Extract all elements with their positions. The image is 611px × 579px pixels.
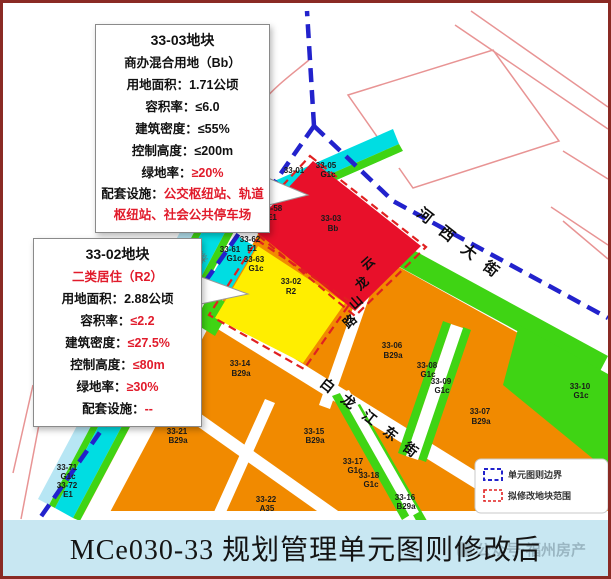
svg-text:B29a: B29a	[305, 436, 325, 445]
svg-text:Bb: Bb	[328, 224, 339, 233]
svg-text:33-09: 33-09	[431, 377, 452, 386]
svg-text:E1: E1	[247, 244, 257, 253]
svg-text:B29a: B29a	[396, 502, 416, 511]
svg-text:G1c: G1c	[226, 254, 242, 263]
svg-text:33-02: 33-02	[281, 277, 302, 286]
svg-text:33-07: 33-07	[470, 407, 491, 416]
svg-text:B29a: B29a	[168, 436, 188, 445]
svg-text:G1c: G1c	[320, 170, 336, 179]
callout-33-02-height: 控制高度：≤80m	[36, 354, 199, 376]
svg-text:33-14: 33-14	[230, 359, 251, 368]
svg-text:33-18: 33-18	[359, 471, 380, 480]
callout-33-03-height: 控制高度：≤200m	[99, 140, 266, 162]
callout-33-03-density: 建筑密度：≤55%	[99, 118, 266, 140]
svg-text:33-63: 33-63	[244, 255, 265, 264]
svg-text:33-71: 33-71	[57, 463, 78, 472]
legend: 单元图则边界 拟修改地块范围	[475, 459, 608, 513]
svg-text:A35: A35	[260, 504, 275, 513]
svg-text:G1c: G1c	[573, 391, 589, 400]
svg-text:B29a: B29a	[231, 369, 251, 378]
callout-33-02-area: 用地面积：2.88公顷	[36, 288, 199, 310]
svg-text:33-15: 33-15	[304, 427, 325, 436]
callout-33-03-far: 容积率：≤6.0	[99, 96, 266, 118]
svg-text:33-62: 33-62	[240, 235, 261, 244]
callout-33-02-landuse: 二类居住（R2）	[36, 266, 199, 288]
callout-33-02-title: 33-02地块	[36, 243, 199, 266]
callout-33-02: 33-02地块 二类居住（R2） 用地面积：2.88公顷 容积率：≤2.2 建筑…	[33, 238, 202, 427]
svg-text:G1c: G1c	[363, 480, 379, 489]
callout-33-02-far: 容积率：≤2.2	[36, 310, 199, 332]
svg-text:33-22: 33-22	[256, 495, 277, 504]
callout-33-03-green: 绿地率：≥20%	[99, 162, 266, 184]
svg-text:33-08: 33-08	[417, 361, 438, 370]
svg-text:B29a: B29a	[383, 351, 403, 360]
caption-bar: 公众号·福州房产 MCe030-33 规划管理单元图则修改后	[3, 520, 608, 576]
svg-text:33-03: 33-03	[321, 214, 342, 223]
callout-33-03-facilities: 配套设施：公交枢纽站、轨道枢纽站、社会公共停车场	[99, 184, 266, 226]
callout-33-03-title: 33-03地块	[99, 29, 266, 52]
callout-33-03-landuse: 商办混合用地（Bb）	[99, 52, 266, 74]
svg-text:33-61: 33-61	[220, 245, 241, 254]
svg-text:33-72: 33-72	[57, 481, 78, 490]
svg-text:33-17: 33-17	[343, 457, 364, 466]
legend-label-modify-range: 拟修改地块范围	[508, 490, 571, 501]
svg-text:33-16: 33-16	[395, 493, 416, 502]
callout-33-03-area: 用地面积：1.71公顷	[99, 74, 266, 96]
caption-title: MCe030-33 规划管理单元图则修改后	[70, 528, 541, 568]
svg-text:33-06: 33-06	[382, 341, 403, 350]
callout-33-02-facilities: 配套设施：--	[36, 398, 199, 420]
svg-text:E1: E1	[63, 490, 73, 499]
callout-33-02-green: 绿地率：≥30%	[36, 376, 199, 398]
svg-text:33-05: 33-05	[316, 161, 337, 170]
svg-text:33-01: 33-01	[284, 166, 305, 175]
legend-label-unit-boundary: 单元图则边界	[508, 469, 562, 480]
callout-33-03: 33-03地块 商办混合用地（Bb） 用地面积：1.71公顷 容积率：≤6.0 …	[95, 24, 270, 233]
planning-map-figure: 河 西 大 街 云 龙 山 路 白 龙 江 东 街 秦 33-01 33-05 …	[0, 0, 611, 579]
svg-text:G1c: G1c	[60, 472, 76, 481]
svg-text:G1c: G1c	[248, 264, 264, 273]
callout-33-02-density: 建筑密度：≤27.5%	[36, 332, 199, 354]
svg-text:B29a: B29a	[471, 417, 491, 426]
svg-text:R2: R2	[286, 287, 297, 296]
svg-text:33-10: 33-10	[570, 382, 591, 391]
svg-text:33-21: 33-21	[167, 427, 188, 436]
svg-text:G1c: G1c	[434, 386, 450, 395]
